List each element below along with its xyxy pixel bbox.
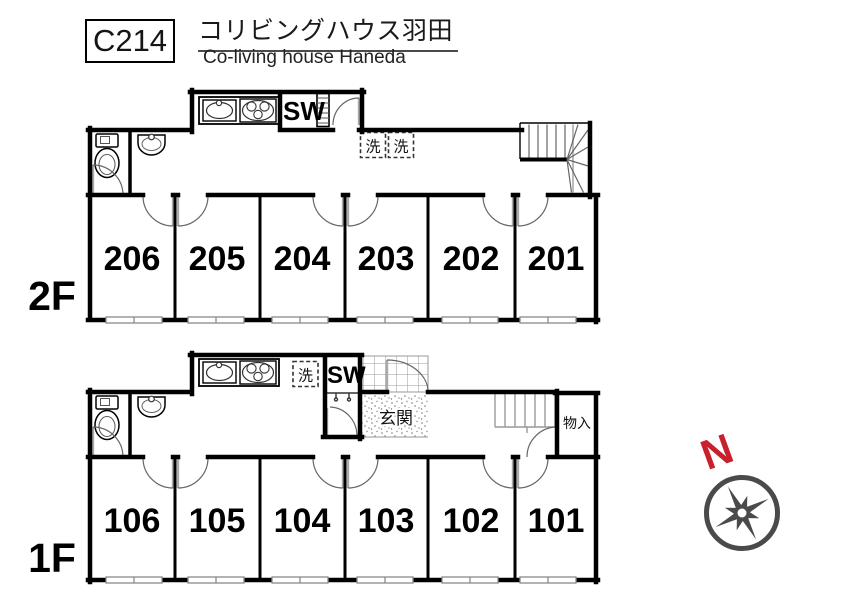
washing-machine-box-icon: 洗 [293,362,318,387]
shower-room-label: SW [283,96,325,126]
kitchen-counter [199,97,279,124]
compass-rose-icon: N [695,424,778,548]
hanger-rail-icon [327,393,358,401]
floor-1f: 洗 [28,353,598,583]
floor-label-2f: 2F [28,273,76,319]
kitchen-sink-icon [203,100,236,121]
stairs-icon [520,123,590,193]
room-number: 102 [443,502,500,540]
entrance-label: 玄関 [379,409,413,428]
room-number: 206 [104,240,161,278]
washing-machine-box-icon: 洗 洗 [361,133,414,158]
washer-label: 洗 [298,368,313,385]
porch-tile-area [362,356,428,392]
stove-icon [240,361,276,384]
room-number: 202 [443,240,500,278]
room-number: 201 [528,240,585,278]
washer-label: 洗 [393,139,408,156]
floor-2f: 洗 洗 [28,90,598,323]
toilet-icon [95,396,119,440]
floor-label-1f: 1F [28,535,76,581]
room-number: 205 [189,240,246,278]
room-number: 106 [104,502,161,540]
floor-plan-page: C214 コリビングハウス羽田 Co-living house Haneda 洗 [0,0,842,595]
room-number: 105 [189,502,246,540]
north-label: N [695,424,740,479]
kitchen-sink-icon [203,362,236,383]
washer-label: 洗 [365,139,380,156]
stove-icon [240,99,276,122]
stairs-icon [495,394,557,433]
room-number: 203 [358,240,415,278]
kitchen-counter [199,359,279,386]
room-number: 104 [274,502,331,540]
room-number: 101 [528,502,585,540]
hand-basin-icon [138,396,165,417]
room-number: 204 [274,240,331,278]
shower-room-label: SW [327,362,366,389]
room-number: 103 [358,502,415,540]
hand-basin-icon [138,134,165,155]
storage-label: 物入 [563,415,591,431]
toilet-icon [95,134,119,178]
floor-plan-drawing: 洗 洗 [0,0,842,595]
